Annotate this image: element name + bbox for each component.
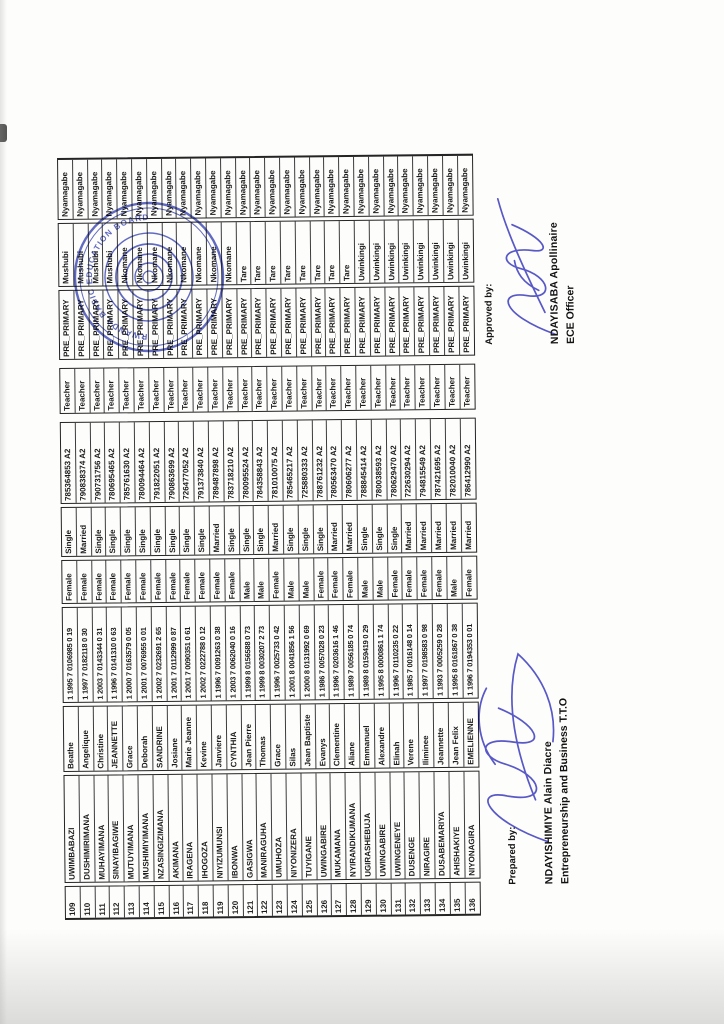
table-cell-marital: Single: [284, 506, 299, 554]
table-cell-marital: Single: [313, 505, 328, 553]
table-cell-marital: Single: [254, 506, 269, 554]
table-cell-district: Nyamagabe: [250, 158, 265, 217]
prepared-by-label: Prepared by:: [507, 826, 519, 884]
table-cell-level: PRE_PRIMARY: [370, 288, 386, 356]
column-position: TeacherTeacherTeacherTeacherTeacherTeach…: [59, 364, 476, 414]
table-cell-no: 111: [95, 887, 110, 918]
table-cell-sector: Uwinkingi: [399, 220, 414, 282]
table-cell-surname: TUYIGANE: [301, 773, 317, 879]
round-stamp: RWANDA BASIC EDUCATION BOARD: [67, 195, 230, 358]
table-cell-district: Nyamagabe: [428, 156, 443, 215]
table-cell-sector: Uwinkingi: [414, 220, 429, 282]
column-phone-qualification: 785364853 A2790838374 A2790731756 A27806…: [60, 418, 477, 504]
table-cell-marital: Single: [136, 507, 151, 555]
table-cell-surname: AHISHAKIYE: [449, 772, 465, 878]
table-cell-marital: Single: [165, 507, 180, 555]
table-cell-gender: Female: [417, 557, 432, 599]
table-cell-gender: Female: [151, 560, 166, 602]
table-cell-no: 119: [214, 885, 229, 916]
table-cell-phone: 780606277 A2: [342, 420, 358, 500]
table-cell-id: 1 1995 7 0106985 0 19: [63, 608, 79, 702]
table-cell-marital: Single: [239, 506, 254, 554]
table-cell-firstname: Jeannette: [434, 703, 449, 767]
table-cell-id: 1 2000 8 0131992 0 69: [299, 605, 315, 699]
table-cell-position: Teacher: [312, 366, 327, 410]
table-cell-position: Teacher: [193, 367, 208, 411]
table-cell-surname: NIYIZUMUNSI: [212, 774, 228, 880]
table-cell-position: Teacher: [430, 365, 445, 409]
table-cell-marital: Single: [150, 507, 165, 555]
table-cell-position: Teacher: [282, 367, 297, 411]
table-cell-level: PRE_PRIMARY: [444, 287, 460, 355]
table-cell-no: 133: [421, 883, 436, 914]
table-cell-surname: MUKAMANA: [331, 773, 347, 879]
table-cell-position: Teacher: [415, 365, 430, 409]
column-surname: UWIMBABAZIDUSHIMIRIMANAMUHAYIMANASINAYIB…: [63, 771, 480, 883]
table-cell-position: Teacher: [253, 367, 268, 411]
table-cell-gender: Female: [195, 559, 210, 601]
table-cell-sector: Tare: [340, 221, 355, 283]
table-cell-id: 1 1997 7 0198583 0 98: [418, 604, 434, 698]
table-cell-sector: Tare: [295, 221, 310, 283]
table-cell-position: Teacher: [149, 368, 164, 412]
table-cell-position: Teacher: [208, 367, 223, 411]
table-cell-district: Nyamagabe: [295, 157, 310, 216]
table-cell-phone: 726477052 A2: [179, 422, 195, 502]
table-cell-sector: Uwinkingi: [429, 220, 444, 282]
table-cell-firstname: Kevine: [197, 705, 212, 769]
table-cell-position: Teacher: [297, 366, 312, 410]
table-cell-phone: 787421695 A2: [431, 419, 447, 499]
table-cell-no: 130: [376, 884, 391, 915]
table-cell-level: PRE_PRIMARY: [267, 289, 283, 357]
table-cell-phone: 784358843 A2: [253, 421, 269, 501]
table-cell-phone: 780038593 A2: [372, 420, 388, 500]
table-cell-district: Nyamagabe: [384, 156, 399, 215]
table-cell-level: PRE_PRIMARY: [385, 287, 401, 355]
scan-left-shading: [0, 0, 7, 1024]
table-cell-position: Teacher: [105, 368, 120, 412]
table-cell-firstname: Alexandre: [374, 704, 389, 768]
table-cell-gender: Male: [358, 558, 373, 600]
table-cell-id: 1 1995 8 0161867 0 38: [447, 604, 463, 698]
table-cell-phone: 783718210 A2: [224, 421, 240, 501]
column-firstname: BeatheAngeliqueChristineJEANNETTEGraceDe…: [63, 702, 480, 772]
table-cell-district: Nyamagabe: [398, 156, 413, 215]
table-cell-sector: Tare: [325, 221, 340, 283]
table-cell-sector: Tare: [281, 222, 296, 284]
table-cell-gender: Female: [181, 560, 196, 602]
table-cell-no: 125: [302, 884, 317, 915]
table-cell-level: PRE_PRIMARY: [429, 287, 445, 355]
table-cell-surname: DUSHIMIRIMANA: [79, 776, 95, 882]
prepared-by-title: Entrepreneurship and Business T.T.O: [557, 698, 571, 884]
table-cell-firstname: Christine: [93, 707, 108, 771]
scanned-document-page: 1091101111121131141151161171181191201211…: [0, 0, 724, 1024]
table-cell-no: 115: [154, 886, 169, 917]
table-cell-gender: Female: [329, 558, 344, 600]
table-cell-phone: 791822051 A2: [150, 422, 166, 502]
table-cell-marital: Single: [121, 507, 136, 555]
table-cell-id: 1 1986 7 0057028 0 23: [314, 605, 330, 699]
table-cell-id: 1 2001 7 0112999 0 87: [166, 607, 182, 701]
table-cell-surname: UWINGABIRE: [375, 773, 391, 879]
table-cell-id: 1 1996 7 0110235 0 22: [388, 604, 404, 698]
table-cell-surname: IHOGOZA: [198, 774, 214, 880]
table-cell-surname: UWINGENEYE: [390, 772, 406, 878]
table-cell-position: Teacher: [75, 369, 90, 413]
table-cell-gender: Male: [255, 559, 270, 601]
table-cell-marital: Single: [387, 504, 402, 552]
table-cell-surname: NYIRANDIKUMANA: [346, 773, 362, 879]
table-cell-gender: Female: [62, 561, 77, 603]
table-cell-surname: UWINGABIRE: [316, 773, 332, 879]
table-cell-marital: Married: [432, 504, 447, 552]
table-cell-gender: Male: [284, 559, 299, 601]
table-cell-id: 1 1999 8 0030207 2 73: [255, 606, 271, 700]
table-cell-gender: Female: [388, 557, 403, 599]
table-cell-gender: Female: [403, 557, 418, 599]
table-cell-firstname: Iliminee: [419, 703, 434, 767]
table-cell-surname: MUHAYIMANA: [94, 776, 110, 882]
prepared-by-block: Prepared by: NDAYISHIMIYE Alain Diacre E…: [475, 694, 586, 940]
table-cell-gender: Female: [166, 560, 181, 602]
table-cell-level: PRE_PRIMARY: [296, 288, 312, 356]
table-cell-level: PRE_PRIMARY: [252, 289, 268, 357]
table-cell-id: 1 2002 7 0222788 0 12: [196, 606, 212, 700]
table-cell-no: 110: [80, 887, 95, 918]
table-cell-marital: Married: [461, 504, 476, 552]
table-cell-firstname: Clementine: [330, 704, 345, 768]
table-cell-district: Nyamagabe: [236, 158, 251, 217]
table-cell-phone: 785761630 A2: [120, 422, 136, 502]
table-cell-phone: 794815549 A2: [416, 419, 432, 499]
table-cell-marital: Married: [343, 505, 358, 553]
table-cell-no: 117: [184, 886, 199, 917]
prepared-by-name: NDAYISHIMIYE Alain Diacre: [542, 741, 555, 884]
table-cell-no: 124: [288, 885, 303, 916]
table-cell-no: 116: [169, 886, 184, 917]
table-cell-firstname: Janviere: [212, 705, 227, 769]
table-cell-surname: NIYONIZERA: [286, 774, 302, 880]
table-cell-phone: 725880333 A2: [298, 420, 314, 500]
table-cell-surname: GASIGWA: [242, 774, 258, 880]
table-cell-id: 1 1996 7 0025733 0 42: [270, 606, 286, 700]
table-cell-gender: Female: [92, 561, 107, 603]
table-cell-marital: Married: [402, 504, 417, 552]
table-cell-surname: UMUHOZA: [272, 774, 288, 880]
table-cell-gender: Female: [314, 558, 329, 600]
table-cell-gender: Male: [299, 558, 314, 600]
table-cell-id: 1 1996 7 0141310 0 63: [107, 607, 123, 701]
table-cell-surname: IRAGENA: [183, 775, 199, 881]
table-cell-phone: 780695465 A2: [105, 422, 121, 502]
table-cell-firstname: CYNTHIA: [227, 705, 242, 769]
table-cell-district: Nyamagabe: [443, 156, 458, 215]
table-cell-phone: 780094464 A2: [135, 422, 151, 502]
table-cell-id: 1 1989 7 0056185 0 74: [344, 605, 360, 699]
table-cell-sector: Uwinkingi: [355, 221, 370, 283]
table-cell-gender: Female: [432, 557, 447, 599]
table-cell-marital: Single: [372, 505, 387, 553]
table-cell-no: 122: [258, 885, 273, 916]
table-cell-marital: Single: [106, 507, 121, 555]
table-cell-gender: Female: [77, 561, 92, 603]
table-cell-sector: Uwinkingi: [443, 220, 458, 282]
table-cell-id: 1 2001 8 0041856 1 56: [285, 606, 301, 700]
column-gender: FemaleFemaleFemaleFemaleFemaleFemaleFema…: [61, 556, 478, 604]
table-cell-level: PRE_PRIMARY: [400, 287, 416, 355]
table-cell-no: 112: [110, 886, 125, 917]
table-cell-marital: Married: [417, 504, 432, 552]
table-cell-id: 1 1997 7 0182118 0 30: [78, 608, 94, 702]
table-cell-position: Teacher: [386, 365, 401, 409]
table-cell-firstname: Aliane: [345, 704, 360, 768]
table-cell-no: 131: [391, 883, 406, 914]
table-cell-surname: AKIMANA: [168, 775, 184, 881]
table-cell-no: 126: [317, 884, 332, 915]
table-cell-surname: SINAYIBAGIWE: [109, 775, 125, 881]
table-cell-gender: Male: [447, 557, 462, 599]
approved-by-label: Approved by:: [483, 284, 495, 345]
table-cell-id: 1 2002 7 0232691 2 65: [152, 607, 168, 701]
table-cell-district: Nyamagabe: [339, 157, 354, 216]
table-cell-id: 1 2001 7 0090351 0 61: [181, 607, 197, 701]
table-cell-gender: Male: [373, 558, 388, 600]
table-cell-surname: DUSENGE: [405, 772, 421, 878]
table-cell-firstname: JEANNETTE: [108, 706, 123, 770]
table-cell-sector: Tare: [236, 222, 251, 284]
table-cell-gender: Female: [210, 559, 225, 601]
table-cell-level: PRE_PRIMARY: [311, 288, 327, 356]
table-cell-gender: Female: [225, 559, 240, 601]
table-cell-firstname: Angelique: [79, 707, 94, 771]
table-cell-phone: 790731756 A2: [90, 423, 106, 503]
table-cell-firstname: Grace: [271, 705, 286, 769]
table-cell-level: PRE_PRIMARY: [281, 289, 297, 357]
table-cell-position: Teacher: [341, 366, 356, 410]
table-cell-phone: 790863699 A2: [164, 422, 180, 502]
column-marital-status: SingleMarriedSingleSingleSingleSingleSin…: [61, 503, 478, 557]
table-cell-position: Teacher: [90, 369, 105, 413]
table-cell-position: Teacher: [164, 368, 179, 412]
table-cell-surname: NIRAGIRE: [420, 772, 436, 878]
table-cell-gender: Female: [343, 558, 358, 600]
table-cell-firstname: Marie Jeanne: [182, 706, 197, 770]
table-cell-position: Teacher: [60, 369, 75, 413]
table-cell-marital: Married: [269, 506, 284, 554]
table-cell-surname: IBONWA: [227, 774, 243, 880]
table-cell-gender: Male: [240, 559, 255, 601]
table-cell-surname: UWIMBABAZI: [64, 776, 80, 882]
table-cell-marital: Single: [62, 508, 77, 556]
table-cell-phone: 785364853 A2: [61, 423, 77, 503]
table-cell-phone: 780629470 A2: [386, 419, 402, 499]
table-cell-level: PRE_PRIMARY: [237, 289, 253, 357]
table-cell-id: 1 1996 7 0203616 1 46: [329, 605, 345, 699]
table-cell-district: Nyamagabe: [413, 156, 428, 215]
table-cell-district: Nyamagabe: [324, 157, 339, 216]
table-cell-district: Nyamagabe: [280, 158, 295, 217]
table-cell-firstname: SANDRINE: [153, 706, 168, 770]
table-cell-position: Teacher: [238, 367, 253, 411]
table-cell-phone: 785465217 A2: [283, 421, 299, 501]
table-cell-gender: Female: [107, 560, 122, 602]
table-cell-id: 1 2000 7 0163579 0 05: [122, 607, 138, 701]
table-cell-surname: MUSHIMIYIMANA: [138, 775, 154, 881]
table-cell-marital: Married: [76, 508, 91, 556]
table-cell-firstname: Deborah: [138, 706, 153, 770]
table-cell-firstname: Verene: [404, 703, 419, 767]
table-cell-position: Teacher: [327, 366, 342, 410]
table-cell-position: Teacher: [134, 368, 149, 412]
table-cell-surname: DUSABEMARIYA: [434, 772, 450, 878]
table-cell-firstname: Thomas: [256, 705, 271, 769]
table-cell-position: Teacher: [356, 366, 371, 410]
table-cell-no: 113: [125, 886, 140, 917]
table-cell-district: Nyamagabe: [265, 158, 280, 217]
table-cell-phone: 791373840 A2: [194, 421, 210, 501]
table-cell-id: 1 1989 8 0159419 0 29: [359, 605, 375, 699]
table-cell-position: Teacher: [119, 368, 134, 412]
table-cell-id: 1 2003 7 0143344 0 31: [92, 608, 108, 702]
table-cell-firstname: Grace: [123, 706, 138, 770]
table-cell-gender: Female: [136, 560, 151, 602]
table-cell-phone: 780563470 A2: [327, 420, 343, 500]
table-cell-district: Nyamagabe: [369, 157, 384, 216]
table-cell-level: PRE_PRIMARY: [326, 288, 342, 356]
table-cell-id: 1 1985 7 0016148 0 14: [403, 604, 419, 698]
table-cell-sector: Tare: [266, 222, 281, 284]
table-cell-id: 1 1999 8 0156588 0 73: [240, 606, 256, 700]
table-cell-phone: 788845414 A2: [357, 420, 373, 500]
table-cell-no: 109: [66, 887, 81, 918]
approved-by-title: ECE Officer: [564, 286, 577, 344]
table-cell-firstname: Jean Pierre: [241, 705, 256, 769]
table-cell-no: 118: [199, 885, 214, 916]
table-cell-level: PRE_PRIMARY: [415, 287, 431, 355]
table-cell-marital: Married: [210, 506, 225, 554]
table-cell-id: 1 2003 7 0062040 0 16: [225, 606, 241, 700]
table-cell-no: 127: [332, 884, 347, 915]
table-cell-no: 128: [347, 884, 362, 915]
table-cell-marital: Single: [298, 505, 313, 553]
table-cell-phone: 790838374 A2: [76, 423, 92, 503]
table-cell-position: Teacher: [460, 365, 475, 409]
table-cell-gender: Female: [462, 557, 477, 599]
table-cell-marital: Single: [224, 506, 239, 554]
table-cell-marital: Single: [91, 508, 106, 556]
table-cell-id: 1 1996 7 0091263 0 38: [211, 606, 227, 700]
table-cell-district: Nyamagabe: [354, 157, 369, 216]
table-cell-marital: Single: [195, 506, 210, 554]
table-cell-id: 1 2001 7 0076955 0 01: [137, 607, 153, 701]
table-cell-id: 1 1995 8 0000861 1 74: [373, 605, 389, 699]
table-cell-firstname: Silas: [286, 705, 301, 769]
approved-by-block: Approved by: NDAYISABA Apollinaire ECE O…: [468, 114, 588, 350]
table-cell-phone: 782010040 A2: [445, 419, 461, 499]
table-cell-phone: 780095524 A2: [238, 421, 254, 501]
table-cell-surname: NZASINGIZIMANA: [153, 775, 169, 881]
table-cell-sector: Tare: [251, 222, 266, 284]
scan-bottom-shading: [0, 929, 724, 1024]
table-cell-sector: Uwinkingi: [369, 221, 384, 283]
table-cell-firstname: Jean Felix: [448, 703, 463, 767]
table-cell-no: 123: [273, 885, 288, 916]
table-cell-no: 120: [228, 885, 243, 916]
table-cell-no: 129: [362, 884, 377, 915]
table-cell-firstname: Jean Baptiste: [301, 704, 316, 768]
column-national-id: 1 1995 7 0106985 0 191 1997 7 0182118 0 …: [62, 603, 479, 703]
table-cell-phone: 786412990 A2: [460, 419, 476, 499]
table-cell-gender: Female: [121, 560, 136, 602]
approved-by-name: NDAYISABA Apollinaire: [548, 222, 561, 344]
table-cell-marital: Single: [180, 507, 195, 555]
table-cell-level: PRE_PRIMARY: [341, 288, 357, 356]
table-cell-no: 132: [406, 883, 421, 914]
table-cell-phone: 781010075 A2: [268, 421, 284, 501]
table-cell-firstname: Evanys: [315, 704, 330, 768]
table-cell-no: 121: [243, 885, 258, 916]
table-cell-marital: Married: [446, 504, 461, 552]
table-cell-position: Teacher: [371, 366, 386, 410]
table-cell-surname: MUTUYIMANA: [124, 775, 140, 881]
table-cell-gender: Female: [269, 559, 284, 601]
table-cell-surname: MANIRAGUHA: [257, 774, 273, 880]
table-cell-sector: Tare: [310, 221, 325, 283]
table-cell-marital: Single: [358, 505, 373, 553]
table-cell-phone: 722630294 A2: [401, 419, 417, 499]
table-cell-marital: Married: [328, 505, 343, 553]
table-cell-position: Teacher: [401, 365, 416, 409]
table-cell-id: 1 1993 7 0005259 0 28: [433, 604, 449, 698]
table-cell-phone: 788761232 A2: [312, 420, 328, 500]
table-cell-firstname: Elinah: [389, 703, 404, 767]
table-cell-district: Nyamagabe: [310, 157, 325, 216]
table-cell-level: PRE_PRIMARY: [355, 288, 371, 356]
table-cell-surname: UGIRASHEBUJA: [360, 773, 376, 879]
table-cell-position: Teacher: [179, 368, 194, 412]
table-cell-no: 135: [450, 883, 465, 914]
column-number: 1091101111121131141151161171181191201211…: [65, 882, 482, 920]
table-cell-no: 114: [140, 886, 155, 917]
table-cell-firstname: Emmanuel: [360, 704, 375, 768]
table-cell-position: Teacher: [223, 367, 238, 411]
table-cell-sector: Uwinkingi: [384, 220, 399, 282]
table-cell-phone: 789487898 A2: [209, 421, 225, 501]
table-cell-position: Teacher: [267, 367, 282, 411]
table-cell-no: 134: [436, 883, 451, 914]
table-cell-firstname: Josiane: [167, 706, 182, 770]
table-cell-firstname: Beathe: [64, 707, 79, 771]
table-cell-position: Teacher: [445, 365, 460, 409]
